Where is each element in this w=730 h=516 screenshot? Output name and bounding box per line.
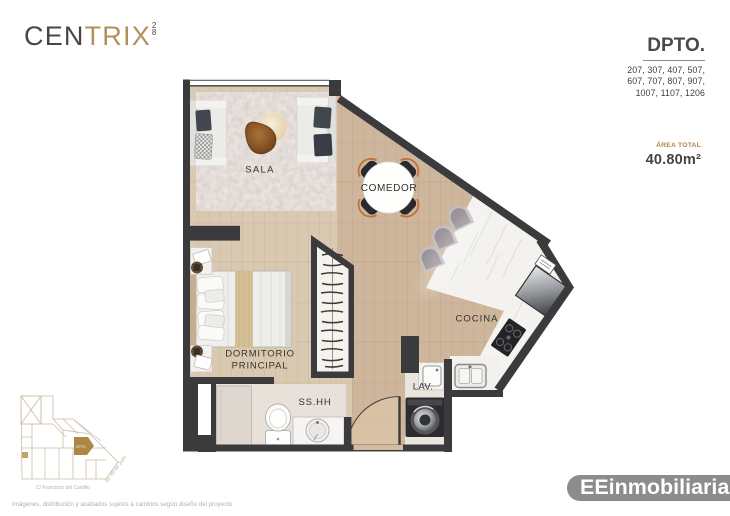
svg-text:COCINA: COCINA <box>456 314 499 325</box>
svg-text:LAV.: LAV. <box>413 382 434 393</box>
svg-text:SALA: SALA <box>245 165 275 176</box>
svg-text:DORMITORIO: DORMITORIO <box>225 349 295 360</box>
svg-text:DPTO: DPTO <box>76 445 86 449</box>
svg-text:PRINCIPAL: PRINCIPAL <box>232 361 289 372</box>
svg-text:Av. 28 de Julio: Av. 28 de Julio <box>104 455 128 485</box>
svg-text:COMEDOR: COMEDOR <box>361 183 417 194</box>
svg-text:C/ Francisco del Castillo: C/ Francisco del Castillo <box>36 485 90 491</box>
svg-text:SS.HH: SS.HH <box>298 397 331 408</box>
